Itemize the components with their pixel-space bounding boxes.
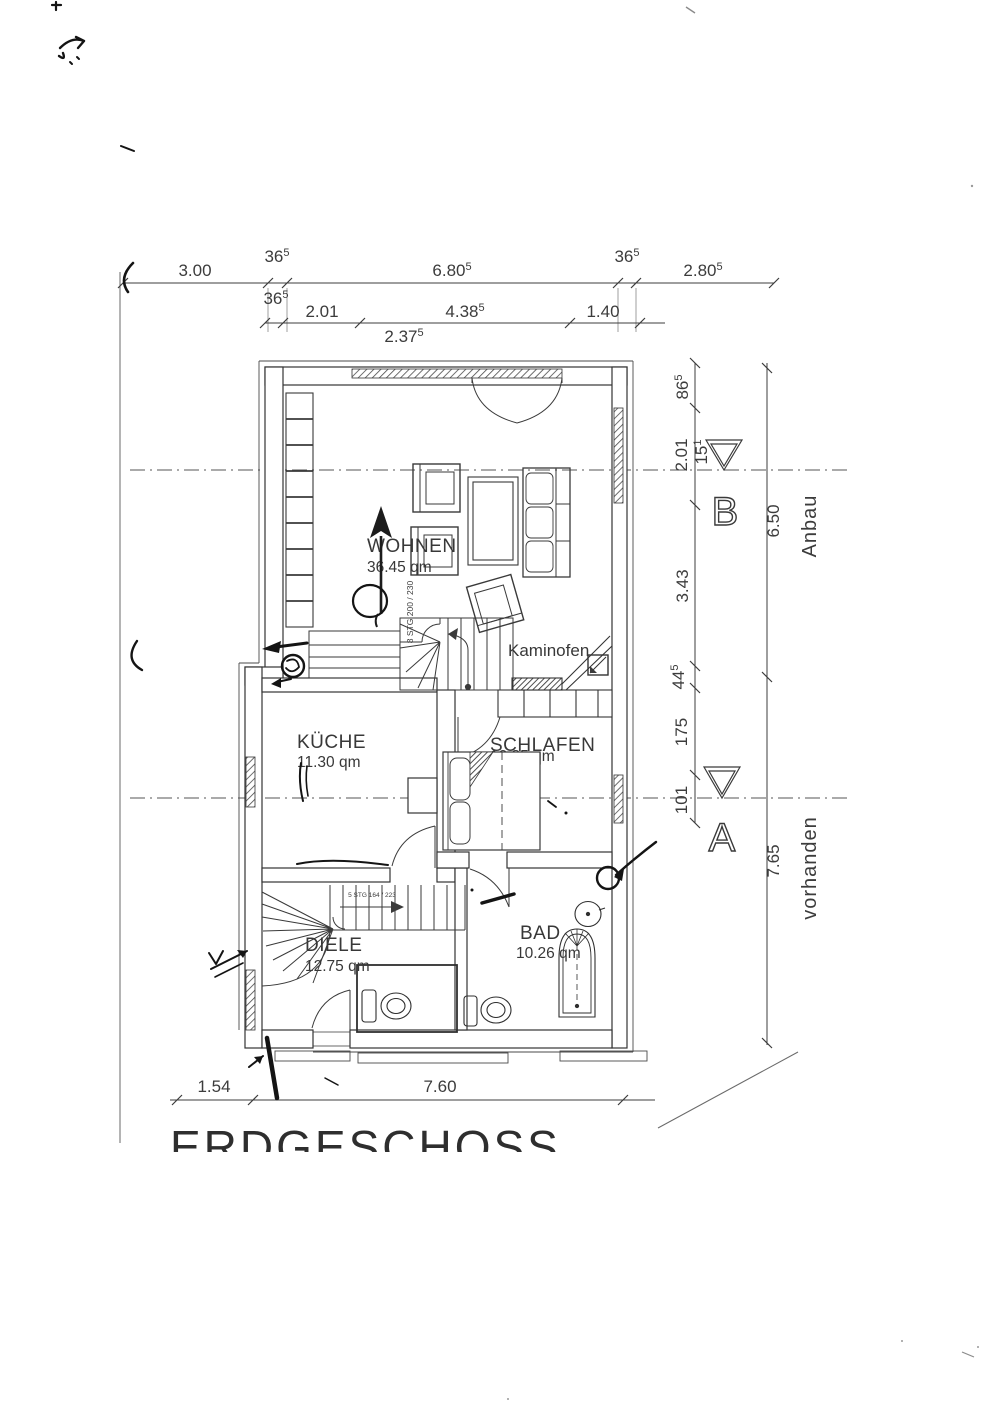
dim-1-54: 1.54 bbox=[197, 1077, 230, 1096]
dim-101: 101 bbox=[672, 786, 691, 814]
wc-enclosure bbox=[357, 965, 457, 1032]
window-diele-left bbox=[246, 970, 255, 1030]
bed bbox=[443, 752, 540, 850]
pen-crescent-top bbox=[124, 263, 133, 292]
floorplan-drawing: 8 STG 200 / 230 5 STG 164 / 223 bbox=[0, 0, 1005, 1425]
coffee-table bbox=[468, 477, 518, 565]
armchair-1 bbox=[413, 464, 460, 512]
room-name-kueche: KÜCHE bbox=[297, 732, 366, 753]
dim-3-43: 3.43 bbox=[673, 569, 692, 602]
washbasin bbox=[575, 902, 605, 927]
stair-hall-label: 5 STG 164 / 223 bbox=[348, 892, 396, 899]
dim-36-5-c: 365 bbox=[263, 289, 288, 308]
dim-175: 175 bbox=[672, 718, 691, 746]
dim-6-80-5: 6.805 bbox=[432, 261, 471, 280]
dim-36-5-b: 365 bbox=[614, 247, 639, 266]
toilet-diele bbox=[362, 990, 411, 1022]
dim-3-00: 3.00 bbox=[178, 261, 211, 280]
pen-bath-arrow bbox=[471, 842, 657, 903]
door-kueche bbox=[392, 826, 435, 868]
dim-texts-top2: 365 2.01 4.385 1.40 2.375 bbox=[263, 289, 619, 346]
section-letter-a: A bbox=[709, 816, 736, 860]
bathtub bbox=[559, 929, 595, 1017]
section-marker-b-icon bbox=[706, 440, 742, 470]
pen-scribble-top-corner bbox=[52, 2, 84, 64]
room-area-bad: 10.26 qm bbox=[516, 945, 581, 962]
dim-2-01-top: 2.01 bbox=[305, 302, 338, 321]
pen-dash bbox=[121, 146, 134, 151]
window-wohnen-right bbox=[614, 408, 623, 503]
window-schlafen-right bbox=[614, 775, 623, 823]
toilet-bad bbox=[464, 996, 511, 1026]
exterior-sills bbox=[275, 1051, 647, 1063]
dim-1-40: 1.40 bbox=[586, 302, 619, 321]
armchair-tilted bbox=[467, 575, 524, 633]
dim-7-60: 7.60 bbox=[423, 1077, 456, 1096]
window-band-top bbox=[352, 369, 562, 378]
sofa bbox=[523, 468, 570, 577]
anbau-label: Anbau bbox=[799, 495, 821, 558]
section-letter-b: B bbox=[712, 490, 739, 534]
dim-2-01-right: 2.01 bbox=[672, 438, 691, 471]
sideboard bbox=[309, 631, 400, 678]
door-entrance bbox=[312, 990, 350, 1046]
dim-texts-top1: 3.00 365 6.805 365 2.805 bbox=[178, 247, 722, 280]
kaminofen-label: Kaminofen bbox=[508, 641, 589, 660]
page-title: ERDGESCHOSS bbox=[170, 1121, 561, 1173]
window-kueche-left bbox=[246, 757, 255, 807]
room-area-diele: 12.75 qm bbox=[305, 958, 370, 975]
dim-6-50: 6.50 bbox=[764, 504, 783, 537]
dim-86-5: 865 bbox=[673, 374, 692, 399]
title-group: ERDGESCHOSS bbox=[170, 1121, 561, 1173]
bathroom-fixtures bbox=[464, 902, 605, 1027]
room-name-diele: DIELE bbox=[305, 935, 362, 956]
dim-7-65: 7.65 bbox=[764, 844, 783, 877]
dim-texts-right-inner: 865 2.01 151 3.43 445 175 101 bbox=[669, 374, 711, 814]
dim-4-38-5: 4.385 bbox=[445, 302, 484, 321]
section-marker-a-icon bbox=[704, 767, 740, 798]
floorplan-scan: 8 STG 200 / 230 5 STG 164 / 223 bbox=[0, 0, 1005, 1425]
room-area-wohnen: 36.45 qm bbox=[367, 559, 432, 576]
dim-2-80-5: 2.805 bbox=[683, 261, 722, 280]
pen-window-arrows bbox=[209, 950, 247, 977]
dim-texts-right-outer: 6.50 7.65 Anbau vorhanden bbox=[764, 495, 821, 920]
room-name-bad: BAD bbox=[520, 923, 561, 944]
dim-2-37-5: 2.375 bbox=[384, 327, 423, 346]
pen-crescent-mid bbox=[132, 641, 142, 670]
stair-main-label: 8 STG 200 / 230 bbox=[405, 581, 415, 644]
masonry-wall-blocks bbox=[455, 690, 612, 717]
dim-36-5-a: 365 bbox=[264, 247, 289, 266]
dim-44-5: 445 bbox=[669, 664, 688, 689]
vorhanden-label: vorhanden bbox=[799, 816, 821, 920]
shelving-unit bbox=[286, 393, 313, 627]
room-name-schlafen: SCHLAFEN bbox=[490, 735, 595, 756]
